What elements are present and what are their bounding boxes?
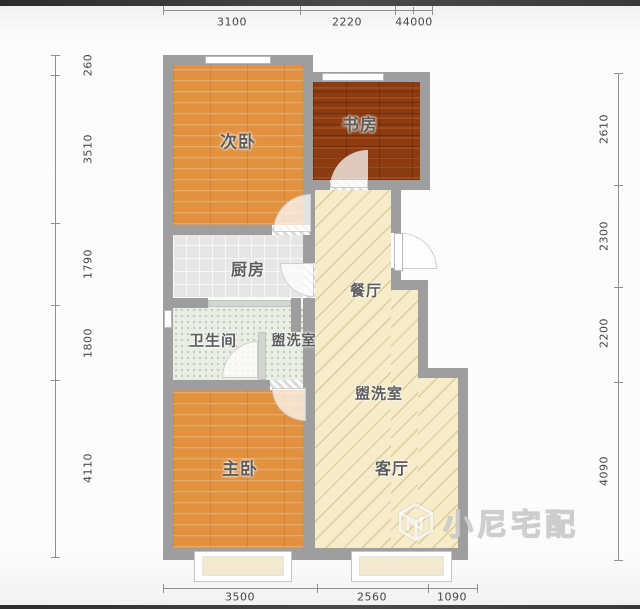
bay-window-master-glass xyxy=(202,556,284,576)
dim-tick xyxy=(428,584,429,593)
floor-dining-living-a xyxy=(315,190,391,548)
wall-kitchen-bath-left xyxy=(163,298,208,308)
wall-kitchen-bath-pass xyxy=(208,300,291,307)
dim-tick xyxy=(477,584,478,593)
dim-label-bottom-1: 3500 xyxy=(225,591,255,604)
dim-tick xyxy=(614,560,623,561)
dim-label-bottom-3: 1090 xyxy=(437,591,467,604)
room-label-kitchen: 厨房 xyxy=(231,256,265,280)
wall-mid-right xyxy=(418,280,428,378)
dim-tick xyxy=(51,305,60,306)
dim-label-top-2: 2220 xyxy=(332,16,362,29)
dim-tick xyxy=(614,287,623,288)
dim-label-bottom-2: 2560 xyxy=(357,591,387,604)
dim-tick xyxy=(614,382,623,383)
dim-line-bottom xyxy=(163,588,477,589)
wall-study-right xyxy=(420,72,430,190)
dim-label-left-1: 260 xyxy=(82,54,95,77)
wall-dining-right-upper xyxy=(391,190,401,233)
room-label-washroom-1: 盥洗室 xyxy=(272,330,317,350)
room-label-bathroom: 卫生间 xyxy=(189,330,237,351)
dim-tick xyxy=(395,6,396,15)
room-label-master-bedroom: 主卧 xyxy=(222,455,258,480)
dim-tick xyxy=(51,557,60,558)
dim-tick xyxy=(163,584,164,593)
room-label-washroom-2: 盥洗室 xyxy=(355,383,403,404)
dim-label-top-3: 44000 xyxy=(395,16,433,29)
room-label-secondary-bedroom: 次卧 xyxy=(220,128,256,153)
wall-bath-master xyxy=(163,380,270,390)
dim-tick xyxy=(51,75,60,76)
dim-tick xyxy=(163,6,164,15)
wall-stub-washroom xyxy=(291,298,301,332)
top-edge-bar xyxy=(0,0,640,6)
dim-tick xyxy=(432,6,433,15)
brand-watermark: 小尼宅配 xyxy=(395,500,579,544)
dim-label-right-2: 2300 xyxy=(598,221,611,251)
dim-line-left xyxy=(55,55,56,557)
door-leaf-entry xyxy=(394,233,403,271)
dim-tick xyxy=(614,185,623,186)
dim-tick xyxy=(317,584,318,593)
watermark-text: 小尼宅配 xyxy=(443,500,579,544)
dim-label-left-3: 1790 xyxy=(82,249,95,279)
room-label-dining: 餐厅 xyxy=(350,280,382,301)
cube-logo-icon xyxy=(395,501,437,543)
floor-plan-canvas: 次卧 书房 厨房 餐厅 卫生间 盥洗室 盥洗室 主卧 客厅 3100 2220 … xyxy=(0,0,640,609)
room-label-living: 客厅 xyxy=(375,455,409,479)
dim-label-left-2: 3510 xyxy=(82,134,95,164)
door-arc-entry xyxy=(401,233,437,269)
room-label-study: 书房 xyxy=(342,111,378,136)
window-bedroom-top xyxy=(205,56,271,64)
dim-line-right xyxy=(618,73,619,560)
dim-tick xyxy=(614,73,623,74)
dim-label-right-1: 2610 xyxy=(598,114,611,144)
dim-tick xyxy=(51,380,60,381)
window-study-top xyxy=(322,73,384,81)
dim-tick xyxy=(51,55,60,56)
dim-line-top xyxy=(163,10,432,11)
bay-window-living-glass xyxy=(359,556,444,576)
dim-label-right-4: 4090 xyxy=(598,456,611,486)
dim-tick xyxy=(413,7,414,14)
dim-tick xyxy=(300,6,301,15)
wall-bath-washroom-divider xyxy=(258,332,266,380)
dim-tick xyxy=(51,223,60,224)
dim-label-left-5: 4110 xyxy=(82,453,95,483)
dim-label-right-3: 2200 xyxy=(598,318,611,348)
dim-label-left-4: 1800 xyxy=(82,328,95,358)
window-bathroom-left xyxy=(164,310,172,328)
dim-label-top-1: 3100 xyxy=(217,16,247,29)
bottom-edge-bar xyxy=(0,605,640,609)
